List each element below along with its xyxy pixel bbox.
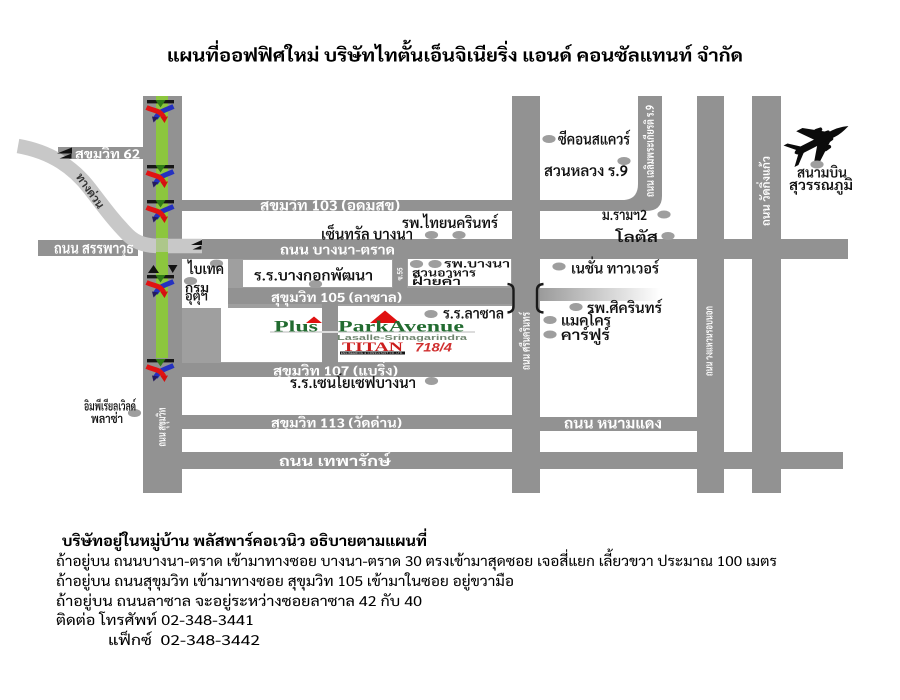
svg-text:718/4: 718/4	[415, 343, 453, 355]
svg-text:ENGINEERING & CONSULTANT CO.,L: ENGINEERING & CONSULTANT CO.,LTD.	[341, 351, 403, 355]
svg-text:ParkAvenue: ParkAvenue	[338, 319, 464, 336]
svg-text:Plus: Plus	[274, 319, 318, 336]
